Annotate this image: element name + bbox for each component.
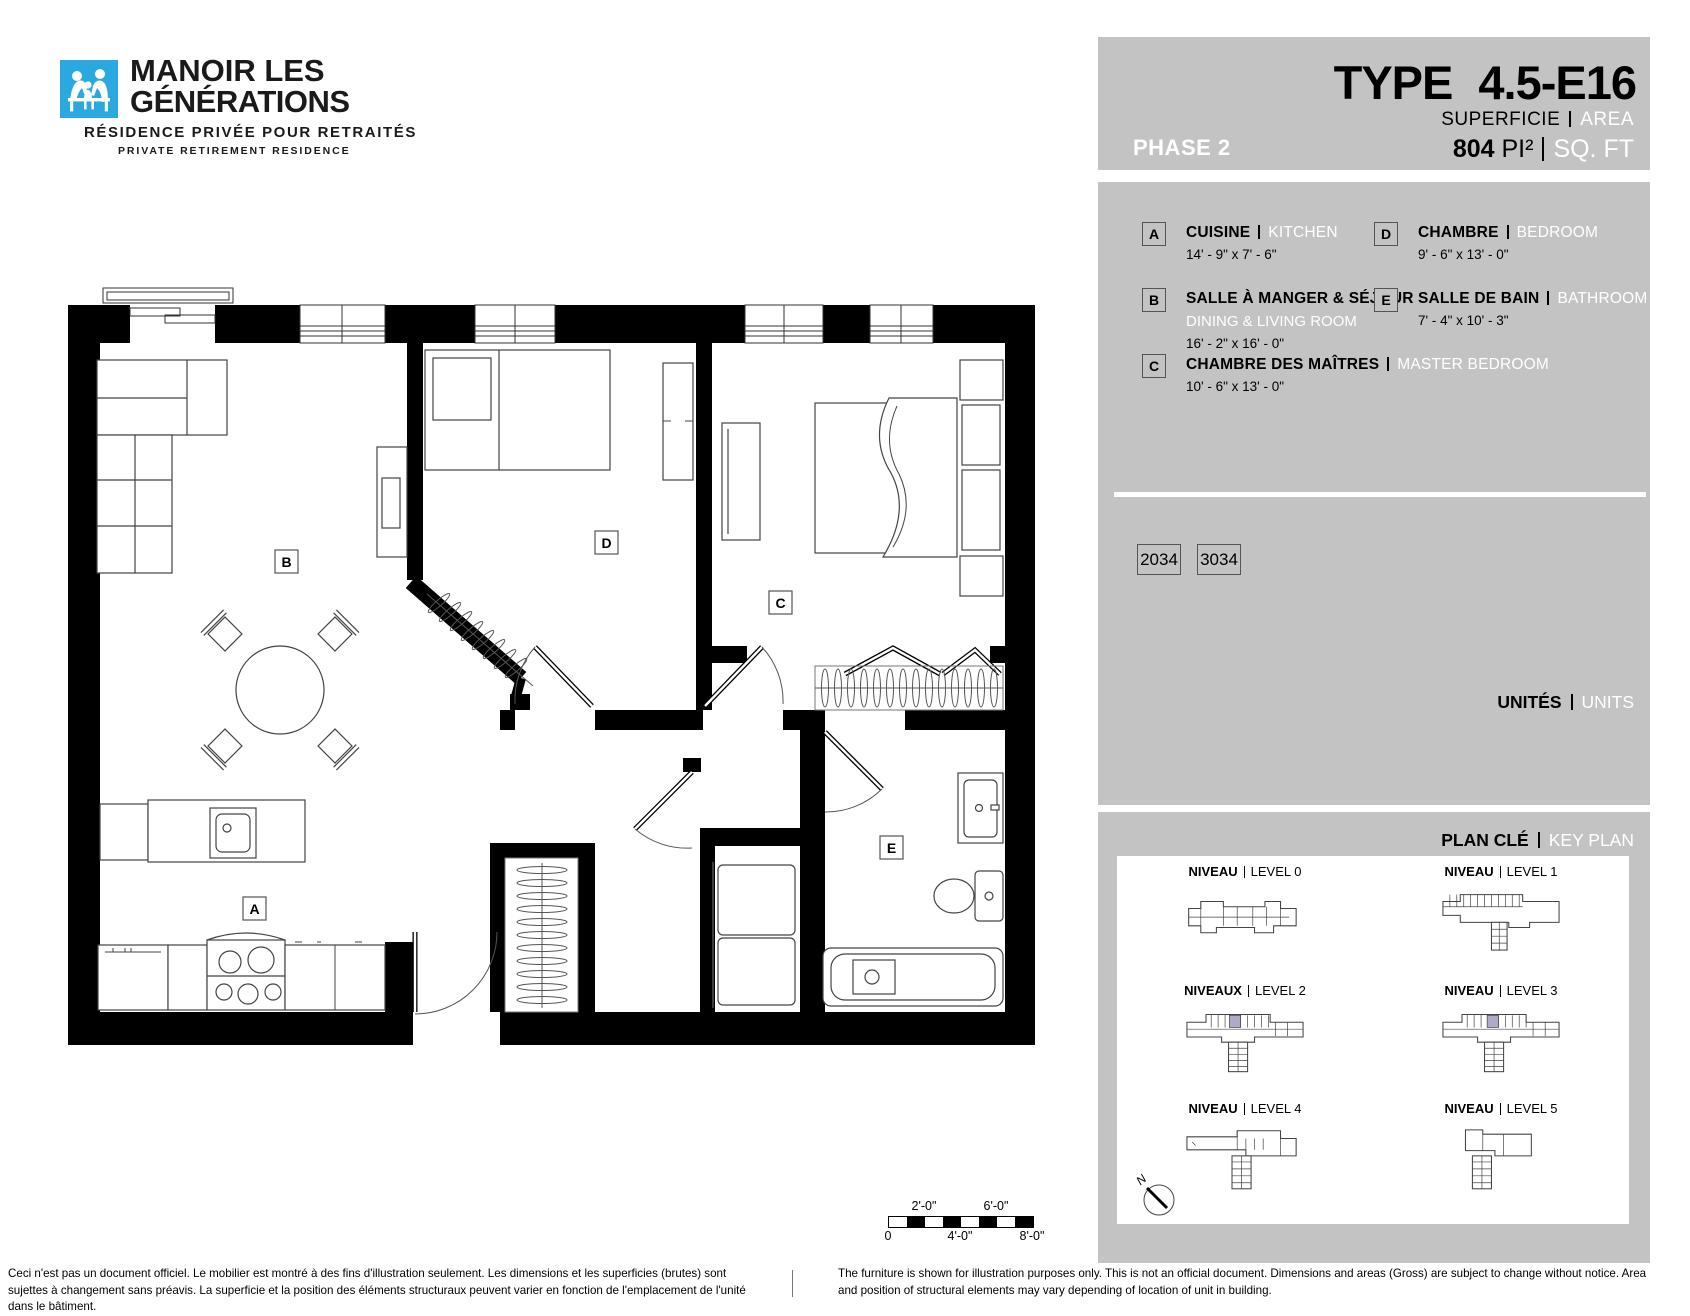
keyplan-level-0-plan	[1170, 879, 1320, 957]
vanity-sink	[958, 773, 1003, 843]
door-hall-lower	[635, 772, 692, 848]
tv-console	[377, 447, 407, 557]
keyplan-title: PLAN CLÉKEY PLAN	[1441, 830, 1634, 851]
header-panel: TYPE4.5-E16 SUPERFICIEAREA 804 PI²SQ. FT…	[1098, 37, 1650, 170]
logo-subtitle-en: PRIVATE RETIREMENT RESIDENCE	[118, 145, 351, 157]
kitchen-island	[100, 800, 305, 862]
door-entry	[415, 932, 497, 1014]
floor-plan-drawing: A B C D E	[55, 248, 1045, 1058]
logo-icon	[60, 60, 118, 118]
scale-label-6ft: 6'-0"	[974, 1199, 1018, 1213]
window-master-1	[745, 305, 823, 343]
dining-chair	[201, 610, 245, 654]
legend-dims-E: 7' - 4" x 10' - 3"	[1418, 313, 1509, 328]
keyplan-level-5-plan	[1426, 1116, 1576, 1194]
unit-number-2034: 2034	[1137, 544, 1181, 575]
legend-key-C: C	[1142, 354, 1166, 378]
legend-en-A: KITCHEN	[1268, 224, 1337, 241]
legend-dims-C: 10' - 6" x 13' - 0"	[1186, 379, 1284, 394]
area-unit-fr: PI²	[1501, 135, 1533, 163]
legend-en-E: BATHROOM	[1557, 290, 1647, 307]
legend-dims-A: 14' - 9" x 7' - 6"	[1186, 247, 1277, 262]
logo-title-line1: MANOIR LES	[130, 56, 325, 86]
unit-number-3034: 3034	[1197, 544, 1241, 575]
legend-fr-C: CHAMBRE DES MAÎTRES	[1186, 356, 1379, 373]
keyplan-level-3: NIVEAULEVEL 3	[1373, 981, 1629, 1100]
unit-type-title: TYPE4.5-E16	[1334, 55, 1636, 110]
level0-en: LEVEL 0	[1251, 864, 1302, 879]
toilet	[934, 871, 1003, 921]
disclaimer-english: The furniture is shown for illustration …	[838, 1266, 1660, 1299]
type-value: 4.5-E16	[1478, 56, 1636, 109]
level1-fr: NIVEAU	[1445, 864, 1494, 879]
legend-fr-D: CHAMBRE	[1418, 224, 1499, 241]
scale-label-0: 0	[866, 1229, 910, 1243]
keyplan-canvas: NIVEAULEVEL 0 NIVEAULEVEL 1 NIVEAUXLEVEL…	[1117, 856, 1629, 1224]
closet-master	[815, 648, 1003, 710]
disclaimer-french: Ceci n'est pas un document officiel. Le …	[8, 1266, 753, 1316]
dining-chair	[201, 726, 245, 770]
units-title: UNITÉSUNITS	[1497, 692, 1634, 713]
door-bathroom	[825, 732, 882, 812]
level3-fr: NIVEAU	[1445, 983, 1494, 998]
level4-fr: NIVEAU	[1189, 1101, 1238, 1116]
keyplan-level-2-plan	[1170, 998, 1320, 1076]
legend-en-D: BEDROOM	[1517, 224, 1599, 241]
dresser-c	[722, 423, 760, 540]
level2-fr: NIVEAUX	[1184, 983, 1242, 998]
area-unit-en: SQ. FT	[1553, 135, 1634, 163]
legend-fr-E: SALLE DE BAIN	[1418, 290, 1539, 307]
closet-diagonal-d	[411, 582, 533, 700]
room-label-bathroom: E	[887, 840, 896, 856]
nightstand	[960, 360, 1003, 400]
fridge	[98, 945, 168, 1010]
dining-chair	[315, 610, 359, 654]
legend-dims-D: 9' - 6" x 13' - 0"	[1418, 247, 1509, 262]
washer-dryer	[713, 862, 795, 1008]
keyplan-level-4-plan	[1170, 1116, 1320, 1194]
level2-en: LEVEL 2	[1255, 983, 1306, 998]
window-bedroom-d	[475, 305, 555, 343]
level3-en: LEVEL 3	[1507, 983, 1558, 998]
logo-title-line2: GÉNÉRATIONS	[130, 87, 350, 117]
stove	[207, 933, 285, 1010]
closet-hall	[505, 858, 578, 1012]
keyplan-level-3-plan	[1426, 998, 1576, 1076]
keyplan-level-1-plan	[1426, 879, 1576, 957]
legend-fr-A: CUISINE	[1186, 224, 1250, 241]
level1-en: LEVEL 1	[1507, 864, 1558, 879]
keyplan-title-en: KEY PLAN	[1549, 830, 1634, 850]
scale-label-4ft: 4'-0"	[938, 1229, 982, 1243]
wardrobe-d	[663, 363, 693, 480]
level4-en: LEVEL 4	[1251, 1101, 1302, 1116]
window-master-2	[870, 305, 933, 343]
dining-chair	[315, 726, 359, 770]
keyplan-panel: PLAN CLÉKEY PLAN NIVEAULEVEL 0 NIVEAULEV…	[1098, 812, 1650, 1263]
level5-en: LEVEL 5	[1507, 1101, 1558, 1116]
level0-fr: NIVEAU	[1189, 864, 1238, 879]
units-title-fr: UNITÉS	[1497, 692, 1561, 712]
keyplan-level-2: NIVEAUXLEVEL 2	[1117, 981, 1373, 1100]
floorplan-sheet: { "logo": { "line1": "MANOIR LES", "line…	[0, 0, 1690, 1306]
units-title-en: UNITS	[1582, 692, 1635, 712]
area-value: 804	[1453, 135, 1495, 163]
legend-en-C: MASTER BEDROOM	[1397, 356, 1549, 373]
legend-dims-B: 16' - 2" x 16' - 0"	[1186, 336, 1284, 351]
section-divider	[1114, 492, 1646, 497]
scale-bar-segments	[888, 1216, 1034, 1228]
sofa-sectional	[97, 360, 227, 573]
type-label: TYPE	[1334, 56, 1453, 109]
area-line: 804 PI²SQ. FT	[1453, 135, 1634, 164]
legend-key-D: D	[1374, 222, 1398, 246]
keyplan-level-5: NIVEAULEVEL 5	[1373, 1099, 1629, 1218]
keyplan-level-1: NIVEAULEVEL 1	[1373, 862, 1629, 981]
window-living	[300, 305, 385, 343]
bathtub	[823, 948, 1003, 1006]
scale-label-8ft: 8'-0"	[1010, 1229, 1054, 1243]
legend-en-B: DINING & LIVING ROOM	[1186, 313, 1357, 330]
superficie-fr: SUPERFICIE	[1441, 109, 1560, 130]
room-label-bedroom: D	[601, 535, 611, 551]
legend-key-E: E	[1374, 288, 1398, 312]
disclaimer-divider	[792, 1270, 793, 1297]
kitchen-appliances	[98, 933, 385, 1010]
scale-label-2ft: 2'-0"	[902, 1199, 946, 1213]
scale-bar: 2'-0" 6'-0" 0 4'-0" 8'-0"	[888, 1199, 1040, 1245]
legend-key-A: A	[1142, 222, 1166, 246]
phase-label: PHASE 2	[1133, 135, 1231, 161]
superficie-line: SUPERFICIEAREA	[1441, 109, 1634, 131]
room-label-kitchen: A	[249, 901, 259, 917]
logo-subtitle-fr: RÉSIDENCE PRIVÉE POUR RETRAITÉS	[84, 124, 417, 141]
keyplan-level-0: NIVEAULEVEL 0	[1117, 862, 1373, 981]
room-label-living: B	[281, 554, 291, 570]
level5-fr: NIVEAU	[1445, 1101, 1494, 1116]
keyplan-title-fr: PLAN CLÉ	[1441, 830, 1529, 850]
compass-north-label: N	[1133, 1171, 1149, 1188]
north-compass-icon: N	[1131, 1170, 1183, 1222]
nightstand	[960, 556, 1003, 596]
dining-table	[201, 610, 359, 770]
room-label-master: C	[775, 595, 785, 611]
bed-master	[815, 360, 1003, 596]
legend-key-B: B	[1142, 288, 1166, 312]
bed-d	[425, 350, 610, 470]
superficie-en: AREA	[1580, 109, 1634, 130]
